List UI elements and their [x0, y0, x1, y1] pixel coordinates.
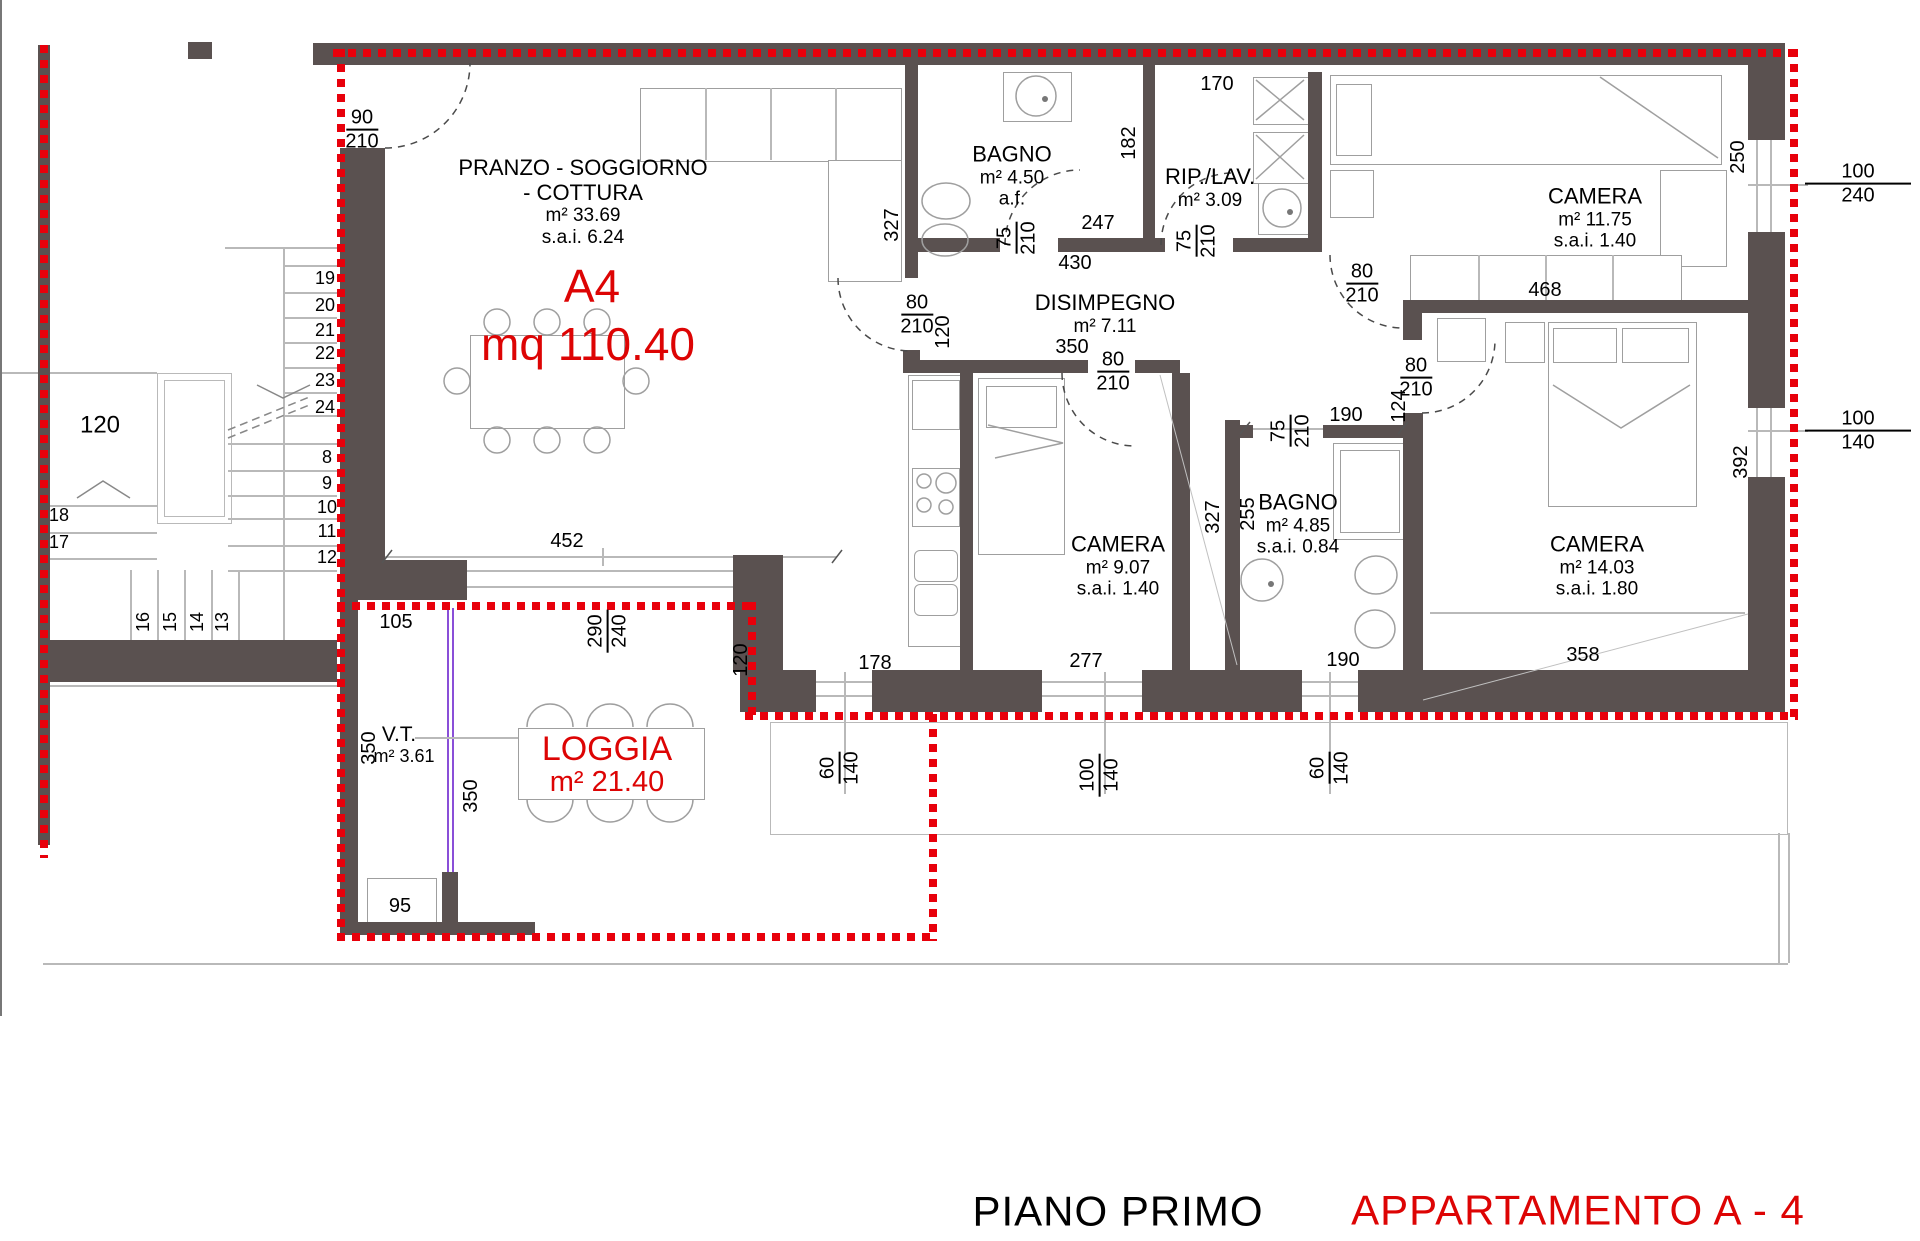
stair-num: 9: [322, 473, 332, 493]
wall-rip-east: [1308, 72, 1322, 238]
stair-num: 15: [160, 612, 180, 632]
room-loggia-area: m² 21.40: [550, 766, 664, 798]
site-baseline: [43, 963, 1788, 965]
dim-entry-w: 90: [346, 107, 378, 131]
pillow: [1622, 328, 1689, 363]
terrace-outline: [770, 722, 1788, 835]
dim-win-camcentro-w: 100: [1077, 753, 1101, 796]
stair-num: 8: [322, 447, 332, 467]
dim-door-camcentro-h: 210: [1096, 373, 1129, 395]
wall-exterior-south: [872, 670, 1042, 712]
boundary-south: [745, 712, 1798, 720]
room-label-bagno2: BAGNO m² 4.85 s.a.i. 0.84: [1257, 490, 1339, 557]
stair-tread: [283, 392, 337, 394]
dim-win-camnord-w: 100: [1805, 161, 1911, 185]
stair-tread: [48, 558, 157, 560]
boundary-loggia-north: [337, 602, 756, 610]
stair-tread: [228, 518, 337, 520]
stair-num: 12: [317, 547, 337, 567]
dim-stair-width: 120: [80, 413, 120, 440]
dim-entry-door: 90 210: [345, 107, 378, 154]
stair-num: 21: [315, 320, 335, 340]
room-living-area: m² 33.69: [458, 205, 707, 226]
wall-exterior-south: [1142, 670, 1302, 712]
dim-window-camera-sud: 100 140: [1805, 408, 1911, 455]
dim-door-bagno2: 75 210: [1268, 414, 1315, 447]
dim-vt-niche: 105: [379, 611, 412, 633]
dim-door-camsud-w: 80: [1400, 355, 1432, 379]
room-bagno2-sai: s.a.i. 0.84: [1257, 536, 1339, 557]
wall-bagno1-east: [1143, 65, 1155, 250]
dim-leader: [1748, 184, 1808, 186]
dim-disimpegno-top: 430: [1058, 252, 1091, 274]
stair-num: 19: [315, 268, 335, 288]
room-label-rip-lav: RIP./LAV. m² 3.09: [1165, 165, 1255, 211]
room-camera-centro-name: CAMERA: [1071, 532, 1165, 557]
sliding-door-glass: [467, 570, 750, 572]
dim-win-loggia-h: 240: [609, 614, 631, 647]
stair-num: 13: [212, 612, 232, 632]
wall-exterior-south: [1358, 670, 1785, 712]
dim-bagno1-width: 247: [1081, 212, 1114, 234]
landing-extension-line: [2, 372, 157, 374]
pillow: [1553, 328, 1617, 363]
dim-window-bagno2: 60 140: [1307, 751, 1354, 784]
dim-win-cucina-w: 60: [817, 752, 841, 784]
dim-disimpegno-width: 350: [1055, 336, 1088, 358]
sofa-cushion-line: [770, 88, 772, 160]
stair-num: 14: [187, 612, 207, 632]
wall-camera-nord-south: [1403, 300, 1748, 313]
washer-unit: [1253, 77, 1309, 125]
window-glass-camera-centro: [1042, 695, 1142, 697]
wall-corridor-north: [1233, 238, 1322, 252]
dim-win-bagno2-w: 60: [1307, 752, 1331, 784]
room-camera-sud-sai: s.a.i. 1.80: [1550, 578, 1644, 599]
dim-win-camnord-h: 240: [1841, 185, 1874, 207]
room-camera-centro-sai: s.a.i. 1.40: [1071, 578, 1165, 599]
sheet-edge-line: [0, 0, 2, 1016]
dim-bagno1-height: 327: [881, 208, 903, 241]
window-glass-camera-sud: [1756, 408, 1758, 477]
room-camera-sud-area: m² 14.03: [1550, 557, 1644, 578]
nightstand: [1505, 322, 1545, 363]
room-label-bagno1: BAGNO m² 4.50 a.f.: [972, 142, 1051, 209]
stair-tread: [228, 443, 337, 445]
dim-door-rip-w: 75: [1174, 225, 1198, 257]
dim-seg-camera: 277: [1069, 650, 1102, 672]
room-label-living: PRANZO - SOGGIORNO - COTTURA m² 33.69 s.…: [458, 156, 707, 248]
dim-door-camnord-h: 210: [1345, 285, 1378, 307]
dim-camera-sud-width: 358: [1566, 644, 1599, 666]
dim-door-camsud-wall: 124: [1388, 389, 1410, 422]
dim-door-bagno1-h: 210: [1018, 221, 1040, 254]
wardrobe-divider: [1612, 255, 1614, 300]
dim-window-camera-centro: 100 140: [1077, 753, 1124, 796]
room-bagno2-area: m² 4.85: [1257, 515, 1339, 536]
terrace-edge-line: [1778, 833, 1780, 963]
floor-title: PIANO PRIMO: [972, 1187, 1263, 1234]
stair-num: 20: [315, 295, 335, 315]
kitchen-stove: [912, 468, 960, 527]
dim-seg-cucina: 178: [858, 652, 891, 674]
cabinet: [1437, 318, 1486, 362]
stair-num: 10: [317, 497, 337, 517]
wall-stairs-south: [48, 640, 337, 682]
room-label-camera-sud: CAMERA m² 14.03 s.a.i. 1.80: [1550, 532, 1644, 599]
wall-camera-centro-east: [1172, 373, 1190, 672]
dim-win-camsud-h: 140: [1841, 432, 1874, 454]
dim-door-camera-nord: 80 210: [1345, 261, 1378, 308]
window-glass-camera-nord: [1756, 140, 1758, 232]
dim-vt-box: 95: [389, 895, 411, 917]
dim-door-living-wall: 120: [932, 315, 954, 348]
boundary-west: [337, 49, 345, 941]
room-bagno1-name: BAGNO: [972, 142, 1051, 167]
stair-landing-box-inner: [164, 380, 225, 517]
stair-tread: [283, 317, 337, 319]
wardrobe-divider: [1478, 255, 1480, 300]
room-bagno1-note: a.f.: [972, 188, 1051, 209]
room-camera-nord-sai: s.a.i. 1.40: [1548, 230, 1642, 251]
dim-tick: [602, 548, 604, 566]
stair-tread: [238, 570, 240, 640]
window-glass-camera-nord: [1770, 140, 1772, 232]
room-disimpegno-area: m² 7.11: [1035, 316, 1176, 337]
dim-window-sill-250: 250: [1727, 140, 1749, 173]
dim-window-loggia: 290 240: [585, 609, 632, 652]
room-rip-name: RIP./LAV.: [1165, 165, 1255, 190]
dim-door-living: 80 210: [900, 292, 933, 339]
room-label-camera-nord: CAMERA m² 11.75 s.a.i. 1.40: [1548, 184, 1642, 251]
dim-win-bagno2-h: 140: [1331, 751, 1353, 784]
dim-loggia-offset: 120: [730, 643, 752, 676]
sliding-door-glass: [467, 586, 750, 588]
kitchen-sink: [914, 584, 958, 616]
unit-total-area: mq 110.40: [481, 319, 695, 371]
room-rip-area: m² 3.09: [1165, 190, 1255, 211]
wall-corridor-north: [917, 238, 1000, 252]
wall-bagno2-north: [1323, 425, 1407, 438]
stair-tread: [130, 570, 132, 640]
floor-plan-sheet: PRANZO - SOGGIORNO - COTTURA m² 33.69 s.…: [0, 0, 1920, 1241]
wall-bagno2-north: [1227, 425, 1253, 438]
dim-door-living-w: 80: [901, 292, 933, 316]
dim-bagno2-width: 255: [1237, 497, 1259, 530]
dim-door-bagno2-h: 210: [1292, 414, 1314, 447]
room-camera-nord-area: m² 11.75: [1548, 209, 1642, 230]
apartment-title: APPARTAMENTO A - 4: [1351, 1186, 1805, 1233]
stair-num: 17: [49, 532, 69, 552]
dim-door-camera-centro: 80 210: [1096, 349, 1129, 396]
dim-win-camsud-w: 100: [1805, 408, 1911, 432]
dim-camera-centro-height: 327: [1202, 500, 1224, 533]
window-glass-camera-centro: [1042, 681, 1142, 683]
stair-wall-edge-line: [48, 685, 337, 687]
boundary-loggia-south: [337, 933, 937, 941]
stair-tread: [157, 570, 159, 640]
boundary-site-strip: [40, 45, 48, 858]
dim-door-rip-h: 210: [1198, 224, 1220, 257]
wall-living-south-west: [340, 560, 467, 600]
dim-vt-350b: 350: [460, 779, 482, 812]
room-camera-nord-name: CAMERA: [1548, 184, 1642, 209]
dim-door-camcentro-w: 80: [1097, 349, 1129, 373]
wall-block-top-left: [188, 42, 212, 59]
wall-exterior-east: [1748, 65, 1785, 140]
dim-window-camera-nord: 100 240: [1805, 161, 1911, 208]
bed-camera-nord: [1330, 75, 1722, 165]
room-label-camera-centro: CAMERA m² 9.07 s.a.i. 1.40: [1071, 532, 1165, 599]
boundary-loggia-east: [929, 714, 937, 941]
vt-glass-line: [452, 608, 454, 872]
room-loggia-name: LOGGIA: [542, 730, 672, 768]
dim-door-rip: 75 210: [1174, 224, 1221, 257]
room-bagno2-name: BAGNO: [1257, 490, 1339, 515]
wall-disimpegno-south: [905, 360, 1088, 373]
wall-exterior-east: [1748, 477, 1785, 712]
kitchen-fridge: [912, 380, 960, 430]
wall-disimpegno-south: [1135, 360, 1180, 373]
wall-camera-sud-west: [1403, 413, 1423, 672]
wall-corridor-north: [1058, 238, 1165, 252]
dim-win-loggia-w: 290: [585, 609, 609, 652]
dim-win-cucina-h: 140: [841, 751, 863, 784]
stair-num: 16: [133, 612, 153, 632]
stair-tread: [184, 570, 186, 640]
wall-cucina-east: [960, 373, 973, 672]
stair-num: 24: [315, 397, 335, 417]
room-camera-centro-area: m² 9.07: [1071, 557, 1165, 578]
stair-tread: [283, 367, 337, 369]
bed-foot-line: [1430, 612, 1745, 614]
pillow: [1336, 84, 1372, 156]
stair-num: 18: [49, 505, 69, 525]
dryer-unit: [1253, 132, 1309, 184]
room-living-name: PRANZO - SOGGIORNO: [458, 156, 707, 181]
dim-camera-nord-width: 468: [1528, 279, 1561, 301]
dim-leader: [1748, 430, 1808, 432]
rip-washbasin-top: [1258, 183, 1309, 235]
room-label-disimpegno: DISIMPEGNO m² 7.11: [1035, 291, 1176, 337]
room-vt-area: m² 3.61: [373, 746, 434, 766]
window-glass-camera-sud: [1770, 408, 1772, 477]
stair-tread: [228, 470, 337, 472]
stair-num: 22: [315, 343, 335, 363]
stair-num: 23: [315, 370, 335, 390]
sofa-cushion-line: [705, 88, 707, 160]
terrace-edge-line: [1788, 833, 1790, 963]
room-camera-sud-name: CAMERA: [1550, 532, 1644, 557]
dim-door-camnord-w: 80: [1346, 261, 1378, 285]
pillow: [986, 386, 1057, 428]
dim-window-cucina: 60 140: [817, 751, 864, 784]
vt-glass-line: [447, 608, 449, 872]
room-living-sai: s.a.i. 6.24: [458, 227, 707, 248]
room-vt-name: V.T.: [382, 723, 416, 747]
stair-tread: [283, 265, 337, 267]
wall-exterior-east: [1748, 232, 1785, 408]
dim-door-bagno2-w: 75: [1268, 415, 1292, 447]
wall-bagno2-west: [1225, 420, 1240, 672]
room-disimpegno-name: DISIMPEGNO: [1035, 291, 1176, 316]
dim-bagno2-top: 190: [1329, 404, 1362, 426]
unit-code: A4: [564, 261, 620, 313]
room-bagno1-area: m² 4.50: [972, 167, 1051, 188]
shower-tray: [1340, 450, 1400, 533]
dim-door-bagno1-w: 75: [994, 222, 1018, 254]
stair-tread: [283, 292, 337, 294]
stair-top-line: [225, 247, 337, 249]
dim-win-camcentro-h: 140: [1101, 758, 1123, 791]
nightstand: [1330, 170, 1374, 218]
dim-rip-width: 170: [1200, 73, 1233, 95]
desk: [1660, 170, 1727, 267]
dim-entry-h: 210: [345, 131, 378, 153]
wall-exterior-west: [340, 148, 385, 560]
wall-vt-step: [442, 872, 458, 924]
sofa-cushion-line: [835, 88, 837, 160]
dim-vt-350a: 350: [358, 731, 380, 764]
dim-seg-bagno2: 190: [1326, 649, 1359, 671]
dim-living-width: 452: [550, 530, 583, 552]
dim-door-living-h: 210: [900, 316, 933, 338]
bagno1-washbasin-top: [1003, 72, 1072, 122]
kitchen-sink: [914, 550, 958, 582]
stair-tread: [228, 570, 337, 572]
dim-door-bagno1: 75 210: [994, 221, 1041, 254]
boundary-north: [333, 49, 1798, 57]
stair-num: 11: [318, 521, 337, 541]
boundary-east: [1790, 49, 1798, 720]
room-living-name2: - COTTURA: [458, 181, 707, 206]
dim-bagno1-wall: 182: [1118, 126, 1140, 159]
dim-window-sill-392: 392: [1730, 445, 1752, 478]
